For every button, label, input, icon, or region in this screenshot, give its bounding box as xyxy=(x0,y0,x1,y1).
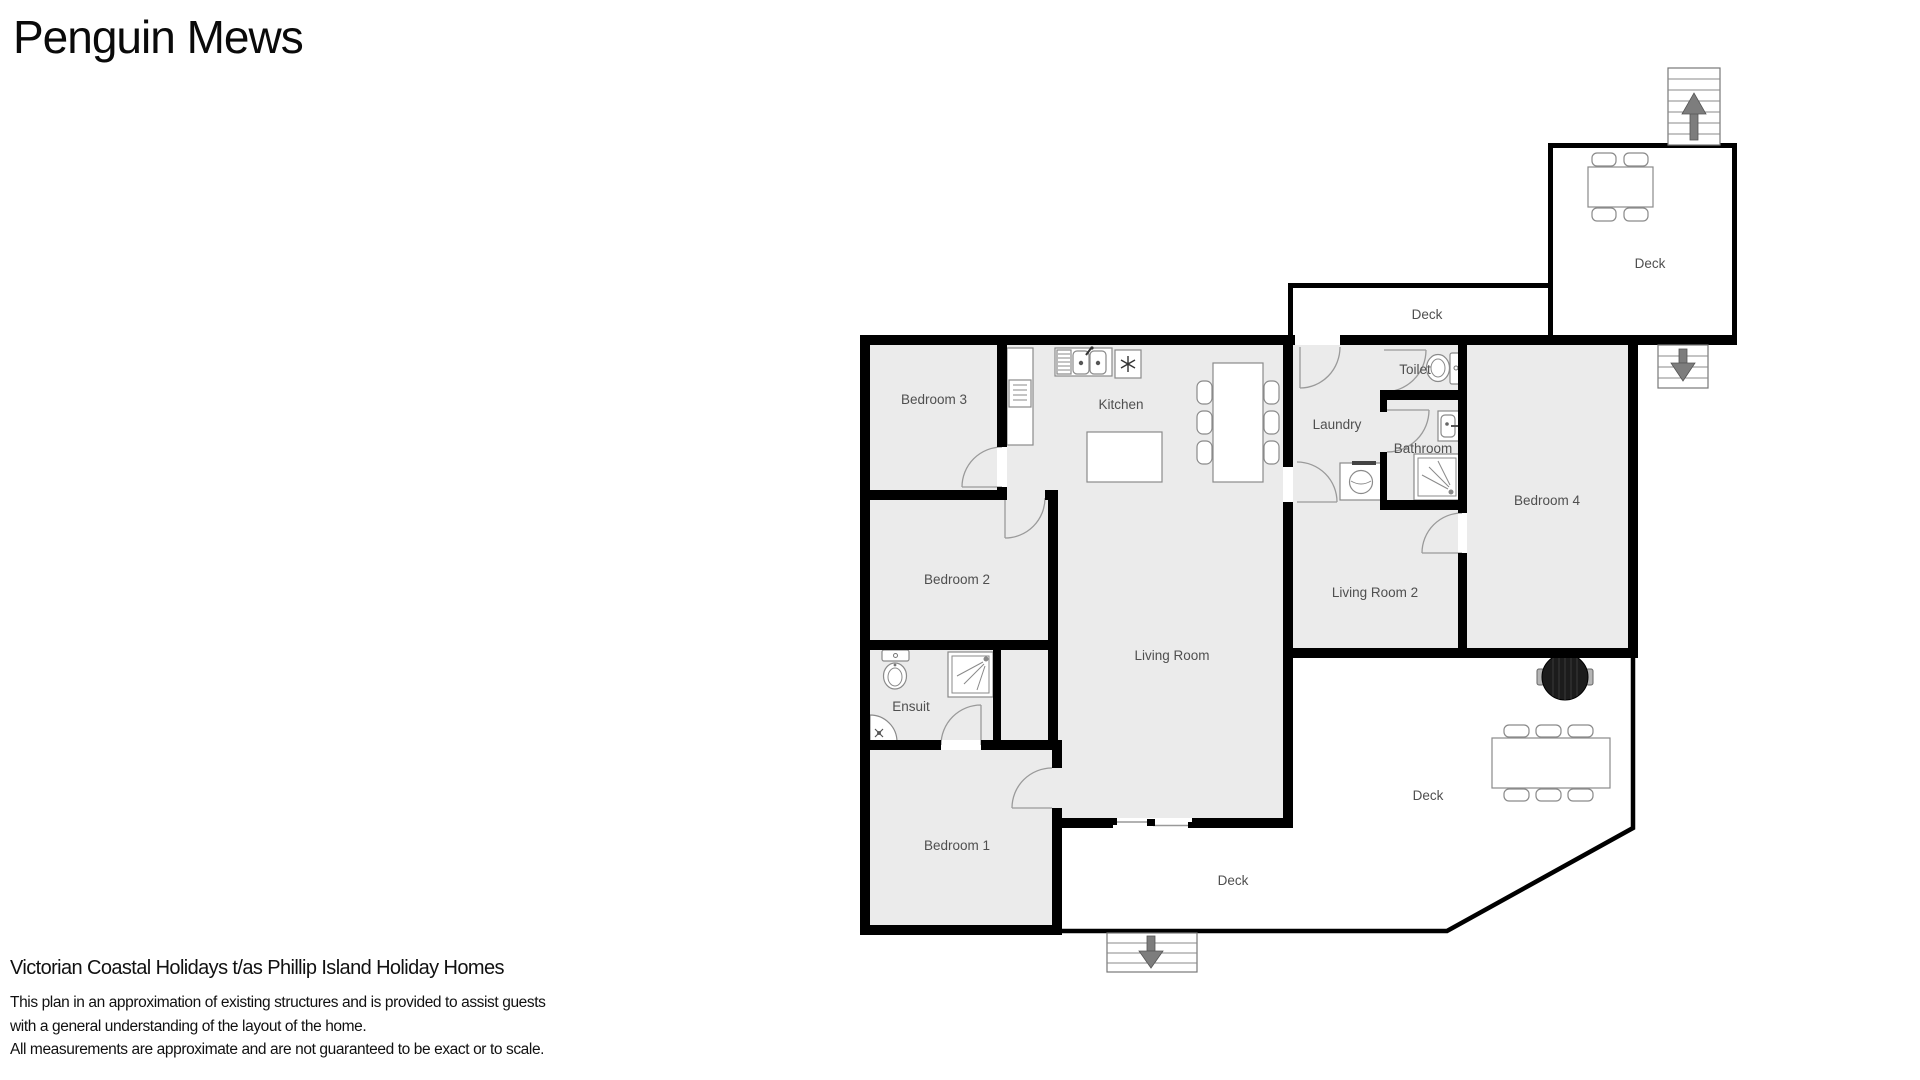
disclaimer-line-1: This plan in an approximation of existin… xyxy=(10,991,546,1015)
wall-bathroom-left-a xyxy=(1380,390,1387,412)
fridge-freezer-icon xyxy=(1115,350,1141,378)
upper-deck-chair xyxy=(1592,208,1616,221)
label-deck-bottom: Deck xyxy=(1218,873,1249,888)
dining-chair xyxy=(1197,441,1212,464)
wall-living-right-b xyxy=(1283,502,1293,828)
label-toilet: Toilet xyxy=(1399,362,1431,377)
dining-chair xyxy=(1264,381,1279,404)
label-ensuite: Ensuit xyxy=(892,699,930,714)
wall-bathroom-bottom xyxy=(1380,500,1467,510)
upper-deck-chair xyxy=(1624,153,1648,166)
stairs-lower-deck xyxy=(1107,933,1197,972)
wall-living-right-a xyxy=(1283,335,1293,467)
upper-deck-left-edge xyxy=(1548,143,1553,345)
deck-strip-top-edge xyxy=(1288,283,1548,288)
kitchen-island xyxy=(1087,432,1162,482)
label-laundry: Laundry xyxy=(1313,417,1362,432)
wall-ensuite-right xyxy=(993,645,1001,748)
ensuite-shower-icon xyxy=(948,652,993,697)
wall-living-bottom-a xyxy=(1052,818,1113,828)
label-bedroom2: Bedroom 2 xyxy=(924,572,990,587)
label-living-room: Living Room xyxy=(1134,648,1209,663)
wall-left xyxy=(860,335,870,935)
wall-bedroom4-left-a xyxy=(1458,335,1467,513)
outdoor-chair xyxy=(1536,725,1561,737)
wall-top-right xyxy=(1340,335,1737,345)
outdoor-chair xyxy=(1568,789,1593,801)
dining-chair xyxy=(1197,411,1212,434)
bbq-icon xyxy=(1537,654,1593,700)
washing-machine-icon xyxy=(1340,461,1382,500)
stairs-upper-deck-top xyxy=(1668,68,1720,145)
label-deck-strip: Deck xyxy=(1412,307,1443,322)
toilet-icon xyxy=(1427,353,1463,384)
wall-ensuite-bottom-a xyxy=(860,740,941,750)
upper-deck-table xyxy=(1588,153,1653,221)
bedroom2-floor xyxy=(870,500,1048,640)
kitchen-counter xyxy=(1007,348,1033,445)
wall-bedroom4-left-b xyxy=(1458,553,1467,658)
wall-bedroom2-top-a xyxy=(860,490,1005,500)
wall-bedroom3-right xyxy=(997,335,1007,447)
outdoor-chair xyxy=(1504,725,1529,737)
label-deck-right: Deck xyxy=(1413,788,1444,803)
label-bedroom1: Bedroom 1 xyxy=(924,838,990,853)
label-deck-upper: Deck xyxy=(1635,256,1666,271)
kitchen-sink-icon xyxy=(1055,346,1112,376)
label-bedroom4: Bedroom 4 xyxy=(1514,493,1581,508)
label-kitchen: Kitchen xyxy=(1098,397,1143,412)
footer: Victorian Coastal Holidays t/as Phillip … xyxy=(10,957,546,1062)
kitchen-appliance-icon xyxy=(1009,380,1031,407)
company-name: Victorian Coastal Holidays t/as Phillip … xyxy=(10,957,546,980)
disclaimer-line-2: with a general understanding of the layo… xyxy=(10,1015,546,1039)
label-bathroom: Bathroom xyxy=(1394,441,1453,456)
floor-plan: Bedroom 3 Bedroom 2 Ensuit Bedroom 1 Kit… xyxy=(0,0,1920,1080)
disclaimer-line-3: All measurements are approximate and are… xyxy=(10,1038,546,1062)
wall-toilet-bottom xyxy=(1380,390,1467,400)
label-bedroom3: Bedroom 3 xyxy=(901,392,967,407)
label-living-room2: Living Room 2 xyxy=(1332,585,1418,600)
stairs-upper-deck-bottom xyxy=(1658,345,1708,388)
wall-bedroom1-bottom xyxy=(860,925,1062,935)
bathroom-sink-icon xyxy=(1438,411,1459,441)
wall-house-right xyxy=(1628,335,1638,658)
dining-chair xyxy=(1197,381,1212,404)
upper-deck-right-edge xyxy=(1732,143,1737,345)
dining-chair xyxy=(1264,411,1279,434)
wall-top-left xyxy=(860,335,1295,345)
outdoor-chair xyxy=(1504,789,1529,801)
upper-deck-chair xyxy=(1592,153,1616,166)
page: Penguin Mews xyxy=(0,0,1920,1080)
bedroom3-floor xyxy=(870,345,997,490)
bathroom-shower-icon xyxy=(1414,454,1460,500)
dining-chair xyxy=(1264,441,1279,464)
wall-living-left xyxy=(1048,490,1058,750)
upper-deck-chair xyxy=(1624,208,1648,221)
outdoor-table xyxy=(1492,725,1610,801)
closet-floor xyxy=(1001,650,1048,740)
outdoor-chair xyxy=(1568,725,1593,737)
sliding-door xyxy=(1113,818,1192,828)
wall-living-bottom-b xyxy=(1192,818,1293,828)
ensuite-toilet-icon xyxy=(882,650,909,689)
wall-ensuite-top xyxy=(860,640,1058,650)
outdoor-chair xyxy=(1536,789,1561,801)
